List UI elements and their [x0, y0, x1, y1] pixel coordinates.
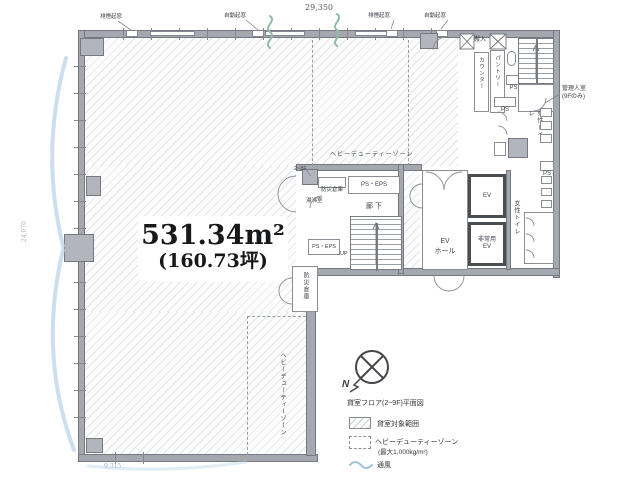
- vent-wave-icon: [268, 14, 339, 48]
- plan-overlay: [0, 0, 640, 480]
- floor-plan: ヘビーデューティーゾーン ヘビーデューティーゾーン 531.34m² (160.…: [0, 0, 640, 480]
- stair-arrows: [373, 45, 539, 264]
- legend-vent-icon: [350, 462, 372, 468]
- door-arcs: [278, 37, 546, 304]
- airflow-arc-icon: [52, 58, 246, 469]
- compass-icon: [350, 351, 388, 392]
- duct-shaft-icon: [460, 34, 506, 49]
